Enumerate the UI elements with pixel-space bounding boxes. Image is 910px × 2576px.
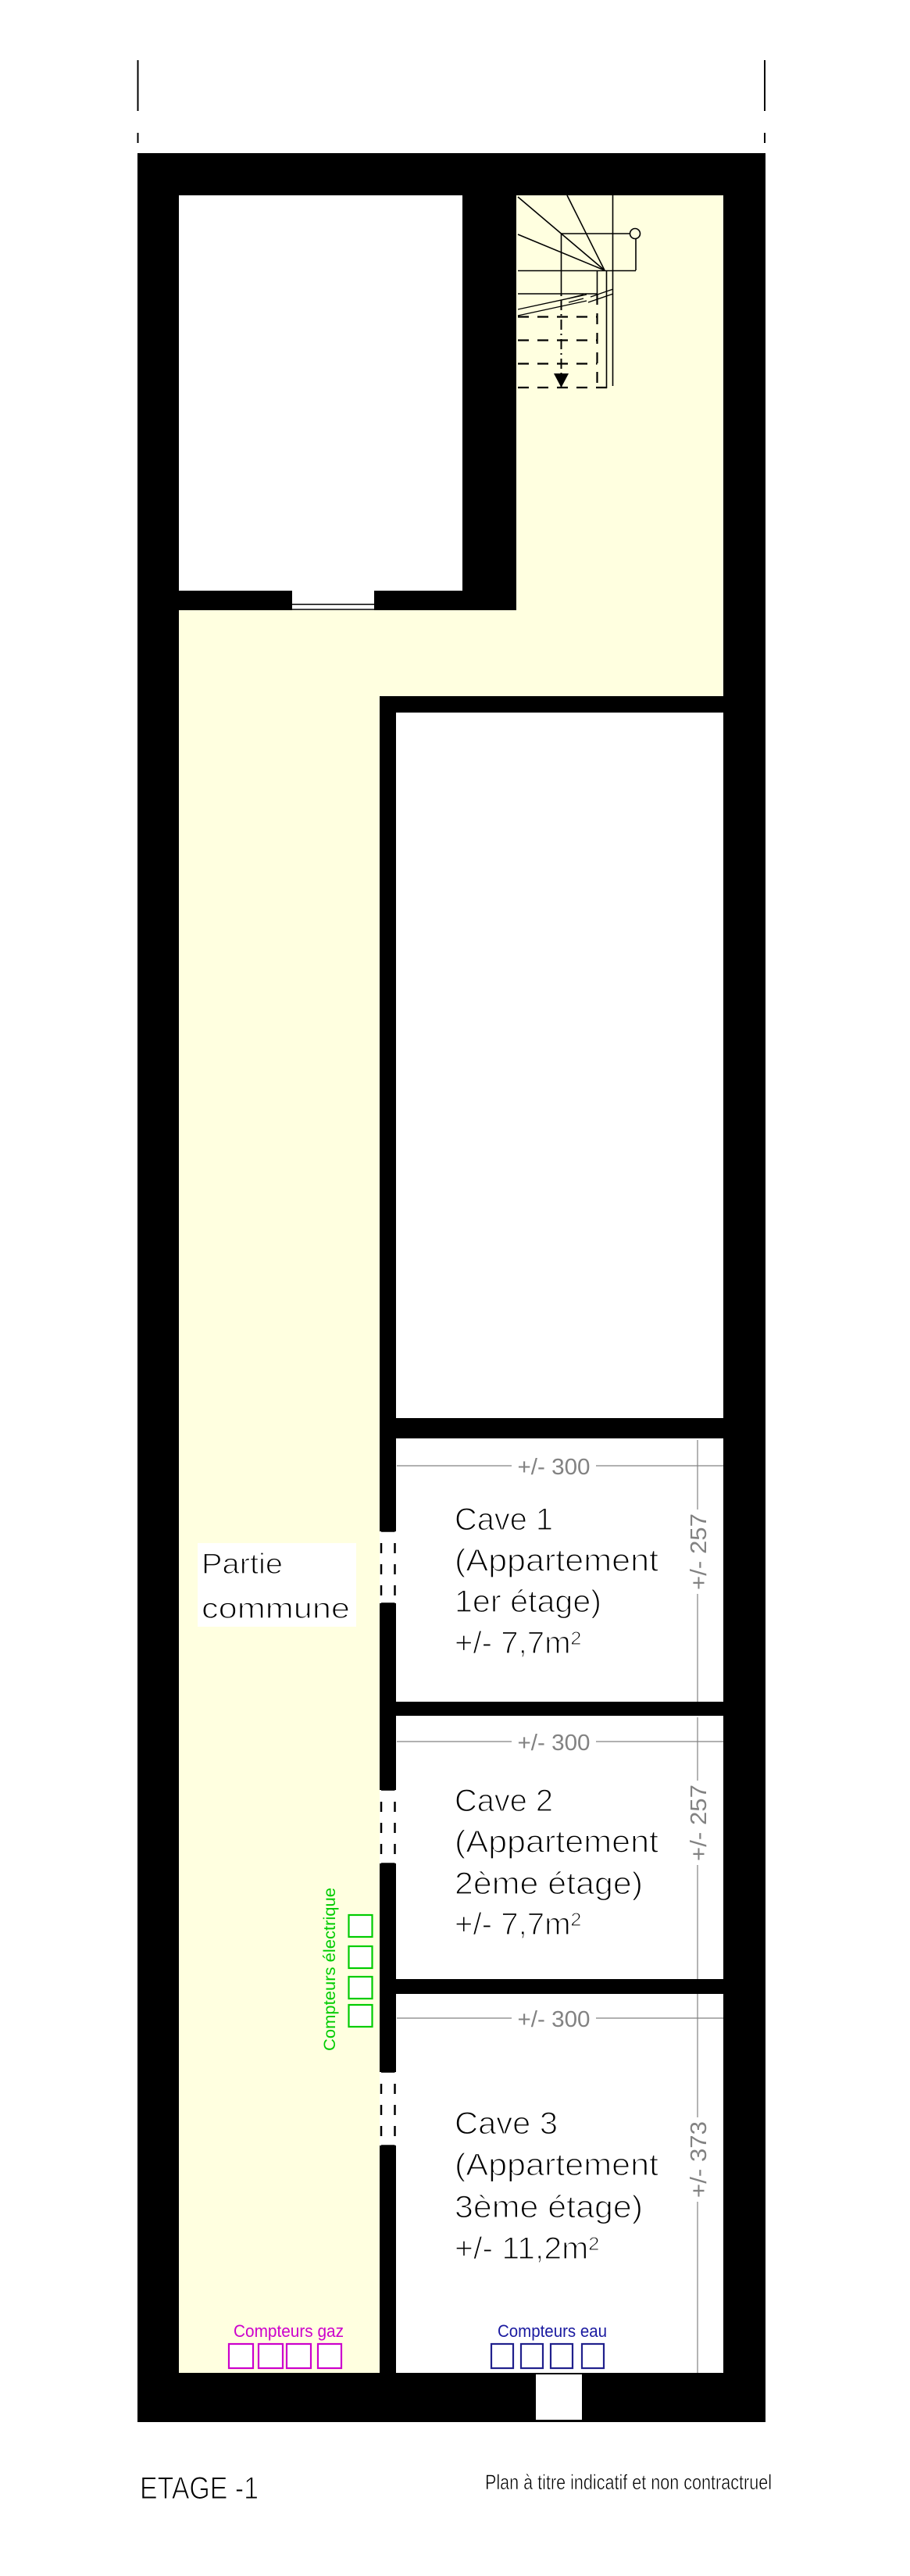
svg-text:3ème étage): 3ème étage) [455, 2190, 643, 2224]
svg-text:+/- 7,7m²: +/- 7,7m² [455, 1907, 581, 1942]
svg-text:Compteurs électrique: Compteurs électrique [321, 1888, 339, 2051]
svg-text:+/- 257: +/- 257 [687, 1513, 712, 1590]
svg-text:Compteurs gaz: Compteurs gaz [234, 2321, 344, 2341]
svg-text:+/- 373: +/- 373 [687, 2121, 712, 2198]
svg-text:1er étage): 1er étage) [455, 1585, 601, 1619]
svg-text:commune: commune [202, 1592, 350, 1624]
svg-text:+/- 300: +/- 300 [518, 2007, 591, 2032]
svg-text:Compteurs eau: Compteurs eau [498, 2321, 607, 2341]
svg-text:Plan à titre indicatif et non: Plan à titre indicatif et non contractru… [485, 2471, 772, 2494]
svg-text:+/- 300: +/- 300 [518, 1455, 591, 1480]
svg-text:(Appartement: (Appartement [455, 1825, 658, 1860]
svg-text:+/- 300: +/- 300 [518, 1731, 591, 1756]
svg-text:(Appartement: (Appartement [455, 2148, 658, 2182]
svg-text:+/- 257: +/- 257 [687, 1785, 712, 1861]
svg-text:(Appartement: (Appartement [455, 1544, 658, 1578]
svg-text:Cave 3: Cave 3 [455, 2106, 558, 2141]
svg-text:+/- 11,2m²: +/- 11,2m² [455, 2231, 599, 2266]
svg-text:Cave 2: Cave 2 [455, 1784, 553, 1818]
svg-text:ETAGE -1: ETAGE -1 [140, 2471, 259, 2506]
svg-text:Partie: Partie [202, 1548, 283, 1580]
svg-text:2ème étage): 2ème étage) [455, 1867, 643, 1901]
svg-text:Cave 1: Cave 1 [455, 1502, 553, 1537]
svg-text:+/- 7,7m²: +/- 7,7m² [455, 1626, 581, 1660]
